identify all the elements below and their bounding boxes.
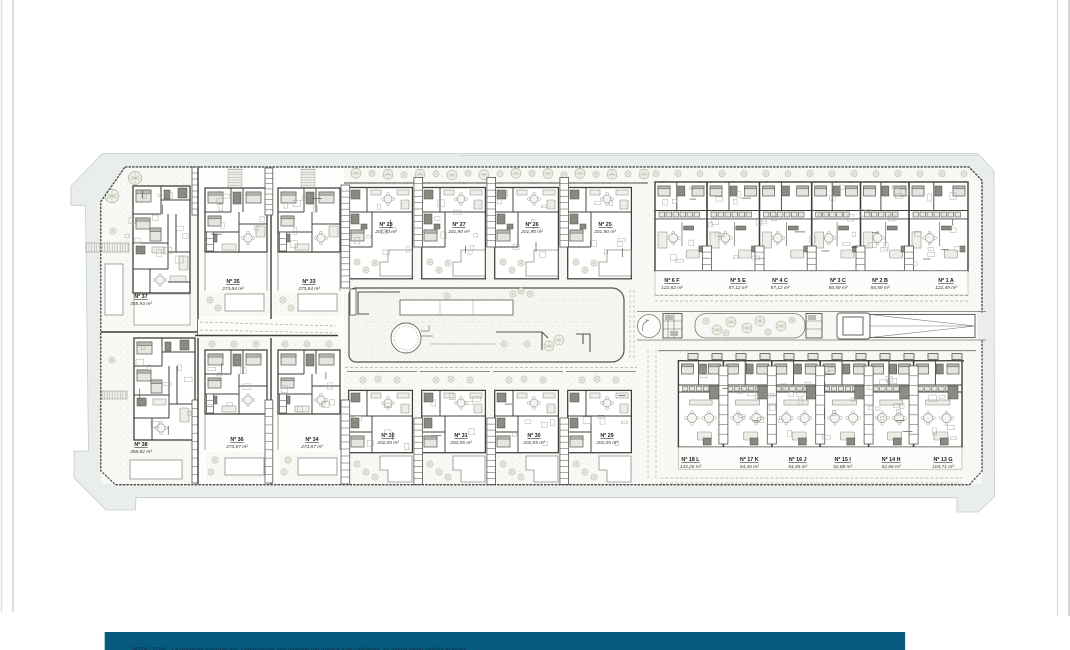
- svg-text:Nº 17 K: Nº 17 K: [740, 457, 759, 463]
- svg-text:Nº 14 H: Nº 14 H: [882, 457, 901, 463]
- svg-text:Nº 37: Nº 37: [134, 294, 147, 300]
- svg-text:Nº 28: Nº 28: [379, 222, 392, 228]
- svg-text:57,12 m²: 57,12 m²: [771, 285, 790, 291]
- svg-text:122,49 m²: 122,49 m²: [935, 285, 957, 291]
- svg-text:Nº 30: Nº 30: [527, 433, 540, 439]
- svg-text:Nº 31: Nº 31: [454, 433, 467, 439]
- svg-text:201,90 m²: 201,90 m²: [593, 229, 616, 235]
- svg-text:Nº 16 J: Nº 16 J: [789, 457, 807, 463]
- svg-text:273,84 m²: 273,84 m²: [297, 286, 320, 292]
- svg-text:Nº 15 I: Nº 15 I: [835, 457, 852, 463]
- svg-text:202,05 m²: 202,05 m²: [595, 440, 618, 446]
- svg-text:Nº 26: Nº 26: [525, 222, 538, 228]
- svg-text:Nº 4 C: Nº 4 C: [772, 278, 788, 284]
- svg-text:52,88 m²: 52,88 m²: [882, 464, 901, 470]
- svg-text:Nº 25: Nº 25: [598, 222, 611, 228]
- svg-text:52,88 m²: 52,88 m²: [833, 464, 852, 470]
- svg-text:273,87 m²: 273,87 m²: [225, 444, 248, 450]
- svg-text:54,45 m²: 54,45 m²: [740, 464, 759, 470]
- svg-text:Nº 18 L: Nº 18 L: [681, 457, 700, 463]
- svg-text:Nº 13 G: Nº 13 G: [933, 457, 952, 463]
- svg-text:Nº 27: Nº 27: [452, 222, 465, 228]
- svg-text:Nº 35: Nº 35: [226, 279, 239, 285]
- svg-text:355,93 m²: 355,93 m²: [130, 301, 152, 307]
- svg-text:Nº 1 A: Nº 1 A: [938, 278, 954, 284]
- svg-text:54,45 m²: 54,45 m²: [788, 464, 807, 470]
- svg-text:Nº 33: Nº 33: [302, 279, 315, 285]
- svg-text:104,71 m²: 104,71 m²: [932, 464, 954, 470]
- svg-text:Nº 36: Nº 36: [230, 437, 243, 443]
- svg-text:273,84 m²: 273,84 m²: [221, 286, 244, 292]
- svg-text:Nº 38: Nº 38: [134, 442, 147, 448]
- svg-text:56,59 m²: 56,59 m²: [871, 285, 890, 291]
- svg-text:122,82 m²: 122,82 m²: [661, 285, 683, 291]
- svg-text:Nº 3 C: Nº 3 C: [830, 278, 846, 284]
- svg-text:202,05 m²: 202,05 m²: [449, 440, 472, 446]
- svg-text:57,12 m²: 57,12 m²: [729, 285, 748, 291]
- svg-text:202,05 m²: 202,05 m²: [376, 440, 399, 446]
- svg-text:Nº 2 B: Nº 2 B: [872, 278, 888, 284]
- svg-text:201,90 m²: 201,90 m²: [447, 229, 470, 235]
- svg-text:201,90 m²: 201,90 m²: [520, 229, 543, 235]
- svg-text:56,59 m²: 56,59 m²: [829, 285, 848, 291]
- svg-text:Nº 29: Nº 29: [600, 433, 613, 439]
- svg-text:143,26 m²: 143,26 m²: [680, 464, 702, 470]
- svg-text:202,05 m²: 202,05 m²: [522, 440, 545, 446]
- svg-text:Nº 6 F: Nº 6 F: [664, 278, 680, 284]
- svg-text:Nº 5 E: Nº 5 E: [730, 278, 746, 284]
- svg-text:Nº 34: Nº 34: [305, 437, 318, 443]
- svg-text:273,87 m²: 273,87 m²: [300, 444, 323, 450]
- svg-text:358,82 m²: 358,82 m²: [130, 449, 152, 455]
